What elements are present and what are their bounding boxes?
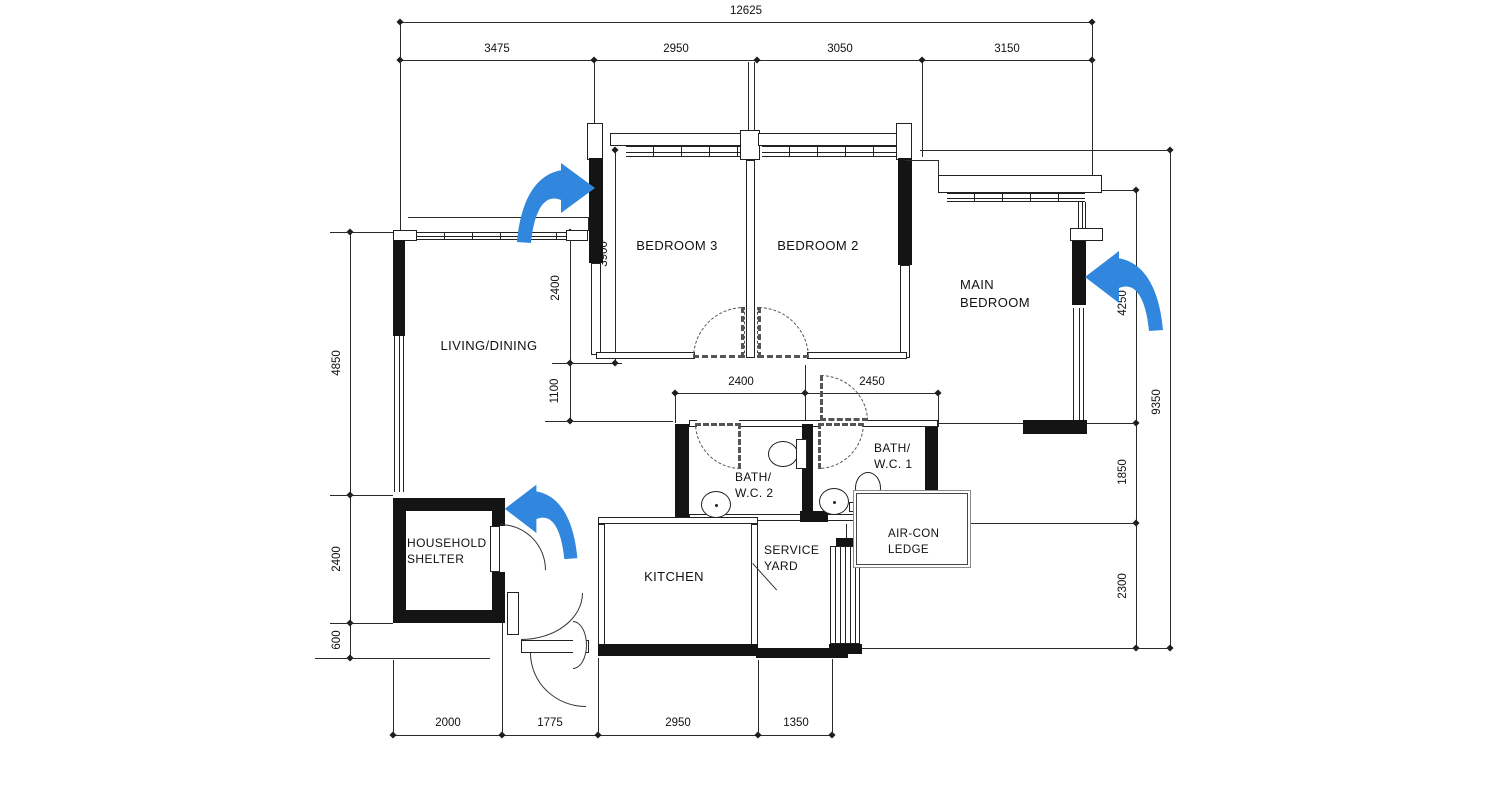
extension-line — [832, 659, 833, 735]
arrow-tail — [517, 170, 563, 243]
room-label-line: BATH/ — [874, 440, 912, 456]
door-arc — [818, 423, 864, 469]
arrow-tail — [535, 491, 578, 559]
room-label-line: YARD — [764, 558, 819, 574]
wall-segment — [900, 265, 910, 358]
room-label-bath-wc1: BATH/ W.C. 1 — [874, 440, 912, 472]
dim-right-1850: 1850 — [1117, 459, 1129, 485]
dimension-line — [570, 232, 571, 421]
extension-line — [848, 648, 1170, 649]
window — [394, 336, 404, 492]
room-label-line: HOUSEHOLD — [407, 535, 487, 551]
wall-segment — [591, 263, 601, 355]
wall-segment — [393, 240, 405, 336]
arrow-bedroom3-wall — [505, 160, 597, 246]
wall-outline — [938, 423, 1023, 424]
basin-drain — [715, 504, 718, 507]
dim-top-overall: 12625 — [730, 5, 762, 17]
wall-segment — [836, 538, 856, 546]
wall-cap — [740, 130, 760, 160]
arrow-head — [505, 485, 537, 533]
dim-bottom-2950: 2950 — [665, 717, 691, 729]
room-label-bedroom2: BEDROOM 2 — [777, 237, 859, 255]
extension-line — [754, 62, 755, 132]
dim-right-2300: 2300 — [1117, 573, 1129, 599]
window — [626, 146, 740, 157]
dim-left-2400: 2400 — [331, 546, 343, 572]
arrow-head — [561, 163, 595, 213]
extension-line — [330, 232, 396, 233]
door-leaf — [507, 592, 519, 635]
room-label-line: SHELTER — [407, 551, 487, 567]
dim-bottom-1350: 1350 — [783, 717, 809, 729]
window — [762, 146, 896, 157]
wall-segment — [807, 352, 907, 359]
wall-segment — [598, 644, 758, 656]
wall-cap — [1070, 228, 1103, 241]
room-label-kitchen: KITCHEN — [644, 568, 704, 586]
extension-line — [1092, 24, 1093, 175]
arrow-household-shelter — [501, 480, 583, 560]
basin-drain — [833, 501, 836, 504]
room-label-line: LEDGE — [888, 542, 939, 558]
dim-left-600: 600 — [331, 630, 343, 649]
wall-segment — [746, 160, 755, 358]
room-label-household-shelter: HOUSEHOLD SHELTER — [407, 535, 487, 567]
arrow-tail — [1117, 258, 1163, 331]
dim-tick — [611, 359, 618, 366]
dim-hall-depth: 1100 — [549, 379, 561, 404]
wall-segment — [596, 352, 695, 359]
room-label-bath-wc2: BATH/ W.C. 2 — [735, 469, 773, 501]
dimension-line — [400, 22, 1092, 23]
door-arc — [693, 307, 744, 358]
arrow-head — [1085, 251, 1119, 303]
window-ledge — [938, 175, 1102, 193]
window-ledge — [758, 133, 898, 146]
dim-top-seg3: 3050 — [827, 43, 853, 55]
dimension-line — [393, 735, 832, 736]
dimension-line — [400, 60, 1092, 61]
dim-bottom-2000: 2000 — [435, 717, 461, 729]
dim-bath2-width: 2400 — [728, 376, 754, 388]
door-leaf — [744, 307, 745, 358]
floor-plan: 12625 3475 2950 3050 3150 4850 2400 600 … — [0, 0, 1500, 785]
wall-outline — [905, 160, 938, 161]
room-label-line: W.C. 2 — [735, 485, 773, 501]
extension-line — [748, 62, 749, 132]
room-label-main-bedroom: MAIN BEDROOM — [960, 276, 1030, 312]
wall-segment — [802, 424, 813, 516]
extension-line — [805, 365, 806, 421]
room-label-line: SERVICE — [764, 542, 819, 558]
extension-line — [1100, 190, 1136, 191]
toilet-tank-icon — [796, 439, 807, 469]
room-label-line: BATH/ — [735, 469, 773, 485]
extension-line — [758, 660, 759, 735]
wall-segment — [1023, 420, 1087, 434]
extension-line — [922, 62, 923, 157]
room-label-line: MAIN — [960, 276, 1030, 294]
dim-top-seg2: 2950 — [663, 43, 689, 55]
arrow-main-bedroom-wall — [1083, 246, 1167, 332]
door-leaf — [757, 307, 758, 358]
wall-segment — [898, 158, 912, 265]
door-arc — [695, 423, 741, 469]
wall-segment — [800, 511, 828, 522]
extension-line — [970, 523, 1136, 524]
room-label-line: W.C. 1 — [874, 456, 912, 472]
window — [947, 193, 1085, 202]
extension-line — [594, 62, 595, 123]
room-label-service-yard: SERVICE YARD — [764, 542, 819, 574]
room-label-aircon-ledge: AIR-CON LEDGE — [888, 526, 939, 558]
room-label-line: AIR-CON — [888, 526, 939, 542]
wall-segment — [751, 524, 758, 646]
extension-line — [315, 658, 490, 659]
dim-living-depth: 2400 — [550, 275, 562, 301]
wall-outline — [938, 160, 939, 175]
wall-segment — [598, 517, 758, 524]
dim-tick — [611, 146, 618, 153]
room-label-living-dining: LIVING/DINING — [441, 337, 538, 355]
wall-segment — [756, 648, 848, 658]
dim-left-4850: 4850 — [331, 350, 343, 376]
dimension-line — [1170, 150, 1171, 648]
extension-line — [675, 395, 676, 423]
door-arc — [758, 307, 809, 358]
extension-line — [330, 623, 393, 624]
door-leaf — [490, 526, 500, 572]
window-ledge — [610, 133, 742, 146]
door-arc — [530, 653, 586, 707]
extension-line — [545, 421, 673, 422]
extension-line — [393, 660, 394, 735]
dim-bath1-width: 2450 — [859, 376, 885, 388]
extension-line — [920, 150, 1170, 151]
dimension-line — [615, 150, 616, 363]
extension-line — [598, 658, 599, 735]
wall-segment — [598, 524, 605, 646]
room-label-line: BEDROOM — [960, 294, 1030, 312]
extension-line — [330, 495, 393, 496]
wall-segment — [675, 424, 689, 524]
dim-top-seg4: 3150 — [994, 43, 1020, 55]
dimension-line — [350, 232, 351, 658]
wall-cap — [587, 123, 603, 160]
toilet-icon — [768, 441, 798, 467]
extension-line — [400, 24, 401, 230]
dim-bottom-1775: 1775 — [537, 717, 563, 729]
room-label-bedroom3: BEDROOM 3 — [636, 237, 718, 255]
wall-segment — [1078, 202, 1086, 228]
wall-cap — [896, 123, 912, 160]
dim-right-overall: 9350 — [1151, 389, 1163, 415]
dim-top-seg1: 3475 — [484, 43, 510, 55]
